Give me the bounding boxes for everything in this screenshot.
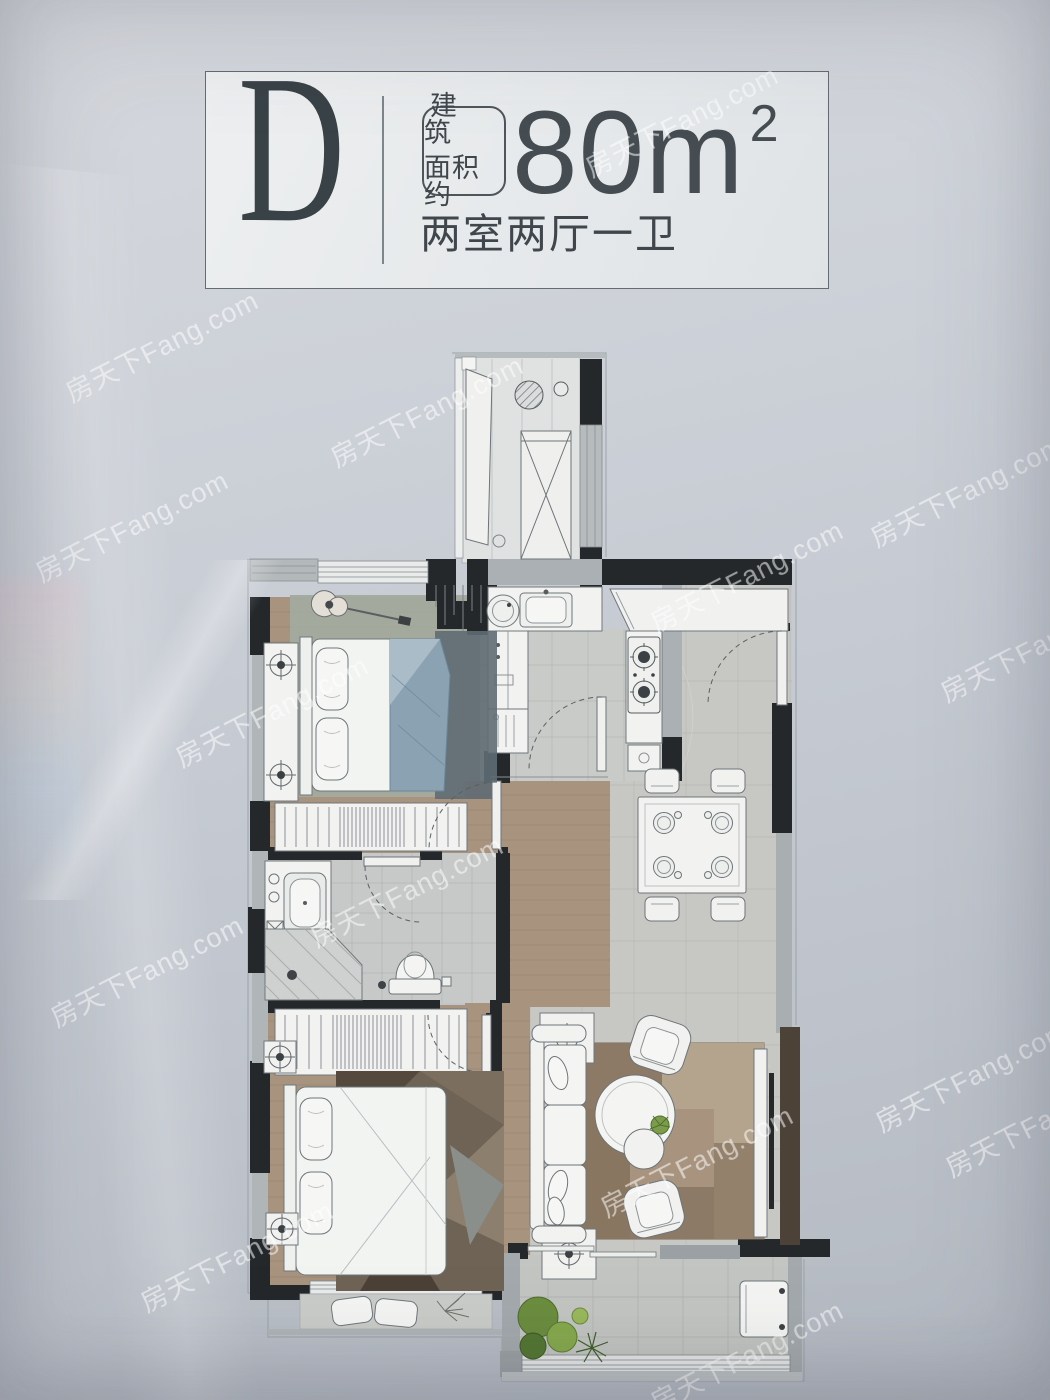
balcony-slider-panel xyxy=(590,1252,656,1257)
watermark-text: 房天下Fang.com xyxy=(938,1054,1050,1185)
master-wardrobe xyxy=(275,1009,467,1075)
entry-door-frame xyxy=(455,358,463,558)
area-badge: 建 筑 面积约 xyxy=(422,106,506,196)
tv-icon xyxy=(769,1073,774,1209)
bed2-wardrobe xyxy=(275,803,467,851)
header-box: D 建 筑 面积约 80 m 2 两室两厅一卫 xyxy=(205,71,829,289)
bed2-headboard xyxy=(300,637,312,795)
bedroom2-door-leaf xyxy=(492,781,501,849)
cushion-icon xyxy=(374,1298,418,1328)
area-superscript: 2 xyxy=(750,98,779,150)
pillow-icon xyxy=(300,1172,332,1234)
dining-chair xyxy=(711,769,745,793)
master-bay-sill xyxy=(268,1329,502,1335)
kitchen-door-leaf xyxy=(597,697,606,771)
floorplan-photo: D 建 筑 面积约 80 m 2 两室两厅一卫 xyxy=(0,0,1050,1400)
coffee-table-small xyxy=(624,1129,664,1169)
header-divider xyxy=(382,96,384,264)
watermark-text: 房天下Fang.com xyxy=(933,579,1050,710)
cushion-icon xyxy=(330,1295,373,1326)
floor-plan xyxy=(240,345,840,1400)
dining-chair xyxy=(645,769,679,793)
pillow-icon xyxy=(300,1098,332,1160)
drain-icon xyxy=(287,970,297,980)
washer-icon xyxy=(487,595,519,627)
entrance-door-leaf xyxy=(777,631,787,705)
entry-door-leaf xyxy=(466,369,492,545)
balcony-window xyxy=(522,1355,790,1372)
unit-label: D xyxy=(238,43,345,259)
sofa xyxy=(530,1025,586,1243)
balcony-sill xyxy=(502,1372,802,1381)
layout-description: 两室两厅一卫 xyxy=(420,200,678,260)
watermark-text: 房天下Fang.com xyxy=(28,459,235,590)
utility-shaft-icon xyxy=(515,381,543,409)
watermark-text: 房天下Fang.com xyxy=(58,279,265,410)
pillow-icon xyxy=(316,718,348,780)
master-door-leaf xyxy=(482,1015,491,1073)
area-badge-line1: 建 筑 xyxy=(424,93,504,147)
reflection-rainbow xyxy=(0,580,80,880)
bathroom-door-leaf xyxy=(364,857,420,866)
watermark-text: 房天下Fang.com xyxy=(863,424,1050,555)
tv-console xyxy=(754,1049,767,1237)
shoe-cabinet xyxy=(610,589,788,631)
watermark-text: 房天下Fang.com xyxy=(43,904,250,1035)
pillow-icon xyxy=(316,648,348,710)
living-room xyxy=(528,1012,774,1279)
balcony-slider-panel xyxy=(528,1246,594,1251)
dining-table xyxy=(638,797,746,893)
pipe-icon xyxy=(554,382,568,396)
watermark-text: 房天下Fang.com xyxy=(868,1009,1050,1140)
